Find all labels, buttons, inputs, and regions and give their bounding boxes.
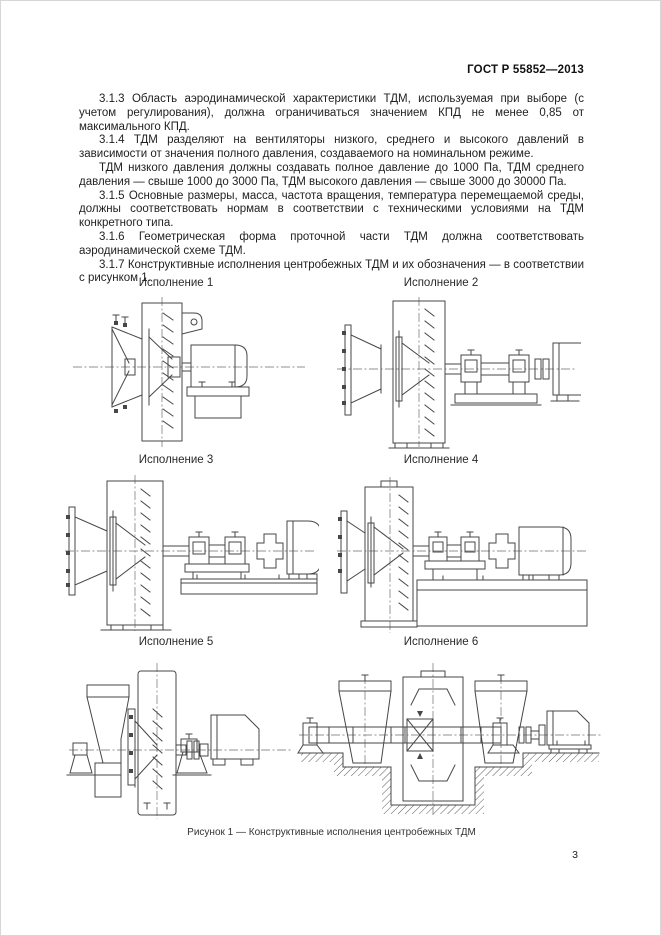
paragraph-3-1-4: 3.1.4 ТДМ разделяют на вентиляторы низко…: [79, 134, 584, 162]
drawing-ispolnenie-1: [69, 293, 309, 456]
paragraph-3-1-4-cont: ТДМ низкого давления должны создавать по…: [79, 162, 584, 190]
label-ispolnenie-1: Исполнение 1: [56, 277, 296, 289]
fan-drawing-5-svg: [65, 653, 297, 821]
paragraph-3-1-5: 3.1.5 Основные размеры, масса, частота в…: [79, 190, 584, 231]
paragraph-3-1-6: 3.1.6 Геометрическая форма проточной час…: [79, 231, 584, 259]
fan-drawing-3-svg: [61, 471, 319, 635]
standard-number-header: ГОСТ Р 55852—2013: [79, 64, 584, 76]
fan-drawing-6-svg: [295, 655, 605, 823]
label-ispolnenie-2: Исполнение 2: [321, 277, 561, 289]
figure-caption: Рисунок 1 — Конструктивные исполнения це…: [79, 827, 584, 838]
drawing-ispolnenie-2: [333, 293, 581, 456]
drawing-ispolnenie-4: [333, 469, 591, 642]
drawing-ispolnenie-5: [65, 653, 297, 826]
fan-drawing-4-svg: [333, 469, 591, 637]
drawing-ispolnenie-6: [295, 655, 605, 828]
page-number: 3: [572, 849, 578, 861]
fan-drawing-2-svg: [333, 293, 581, 451]
body-text: 3.1.3 Область аэродинамической характери…: [79, 93, 584, 286]
paragraph-3-1-3: 3.1.3 Область аэродинамической характери…: [79, 93, 584, 134]
drawing-ispolnenie-3: [61, 471, 319, 640]
document-page: ГОСТ Р 55852—2013 3.1.3 Область аэродина…: [0, 0, 661, 936]
fan-drawing-1-svg: [69, 293, 309, 451]
